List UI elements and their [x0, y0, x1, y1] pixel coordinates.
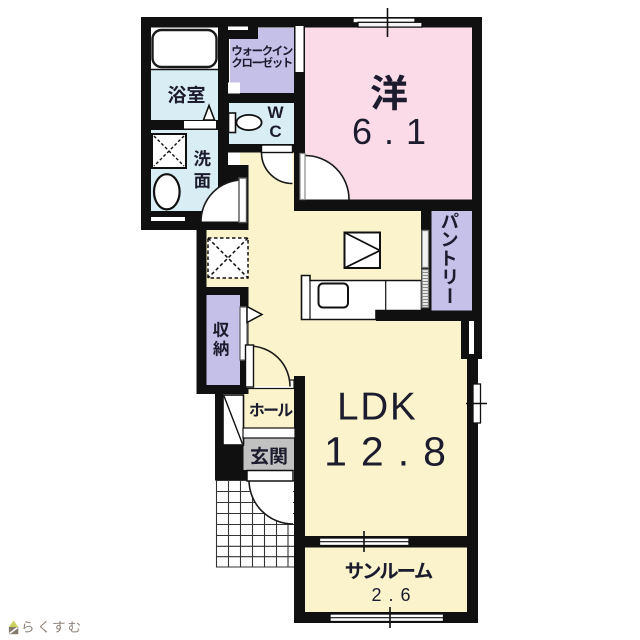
svg-text:6.1: 6.1	[352, 111, 438, 152]
svg-text:W: W	[267, 103, 284, 122]
svg-text:C: C	[269, 122, 281, 141]
svg-text:LDK: LDK	[337, 386, 417, 429]
svg-text:2.6: 2.6	[371, 585, 417, 605]
svg-text:12.8: 12.8	[324, 429, 460, 475]
